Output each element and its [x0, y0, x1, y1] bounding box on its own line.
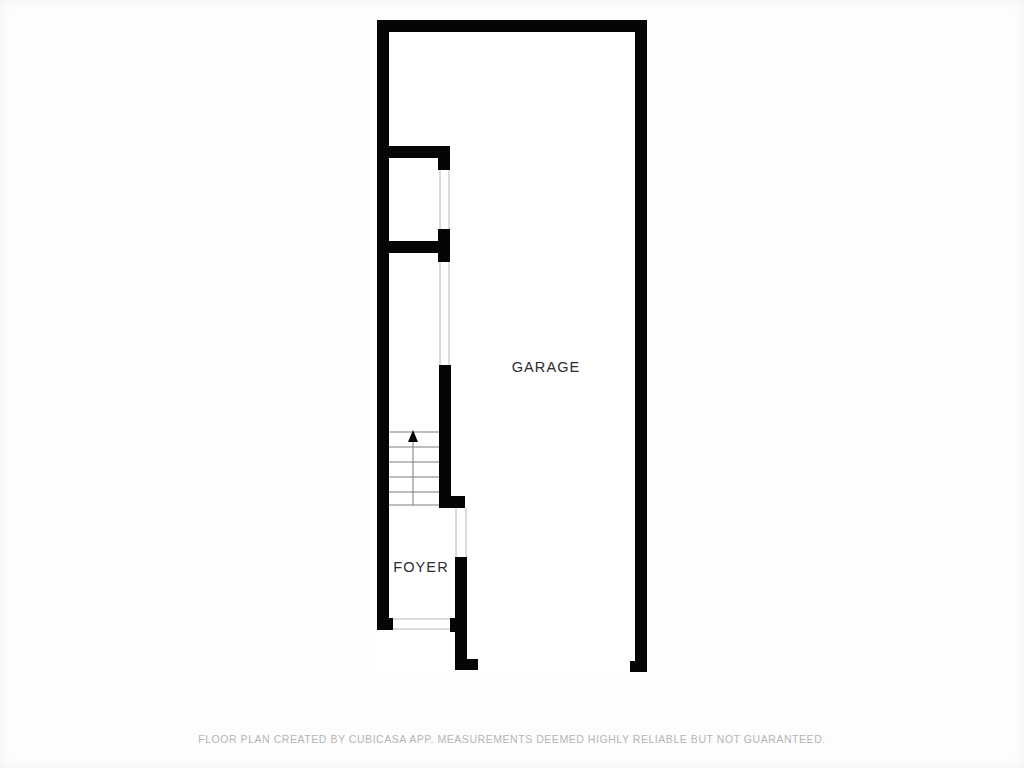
- floorplan-drawing: GARAGEFOYER: [0, 0, 1024, 768]
- wall-foyer-right-foot: [455, 659, 478, 670]
- wall-closet-top-stub: [438, 158, 450, 170]
- wall-right-wall: [635, 20, 647, 672]
- wall-closet-top-wall: [377, 146, 450, 158]
- disclaimer-text: FLOOR PLAN CREATED BY CUBICASA APP. MEAS…: [0, 733, 1024, 745]
- room-label-garage: GARAGE: [512, 359, 581, 375]
- wall-left-wall: [377, 20, 389, 630]
- wall-closet-bottom-wall: [377, 241, 450, 253]
- wall-stairs-wall-foot: [439, 496, 465, 508]
- wall-entry-right-tab: [450, 618, 467, 632]
- wall-left-wall-foot: [377, 618, 393, 630]
- wall-top-wall: [377, 20, 647, 32]
- floorplan-page: GARAGEFOYER FLOOR PLAN CREATED BY CUBICA…: [0, 0, 1024, 768]
- wall-stairs-side-wall: [439, 365, 451, 507]
- wall-foyer-right-wall: [455, 557, 467, 670]
- wall-closet-stub-upper: [438, 229, 450, 241]
- wall-right-wall-foot: [630, 661, 647, 672]
- room-label-foyer: FOYER: [393, 559, 448, 575]
- wall-closet-stub-lower: [438, 253, 450, 262]
